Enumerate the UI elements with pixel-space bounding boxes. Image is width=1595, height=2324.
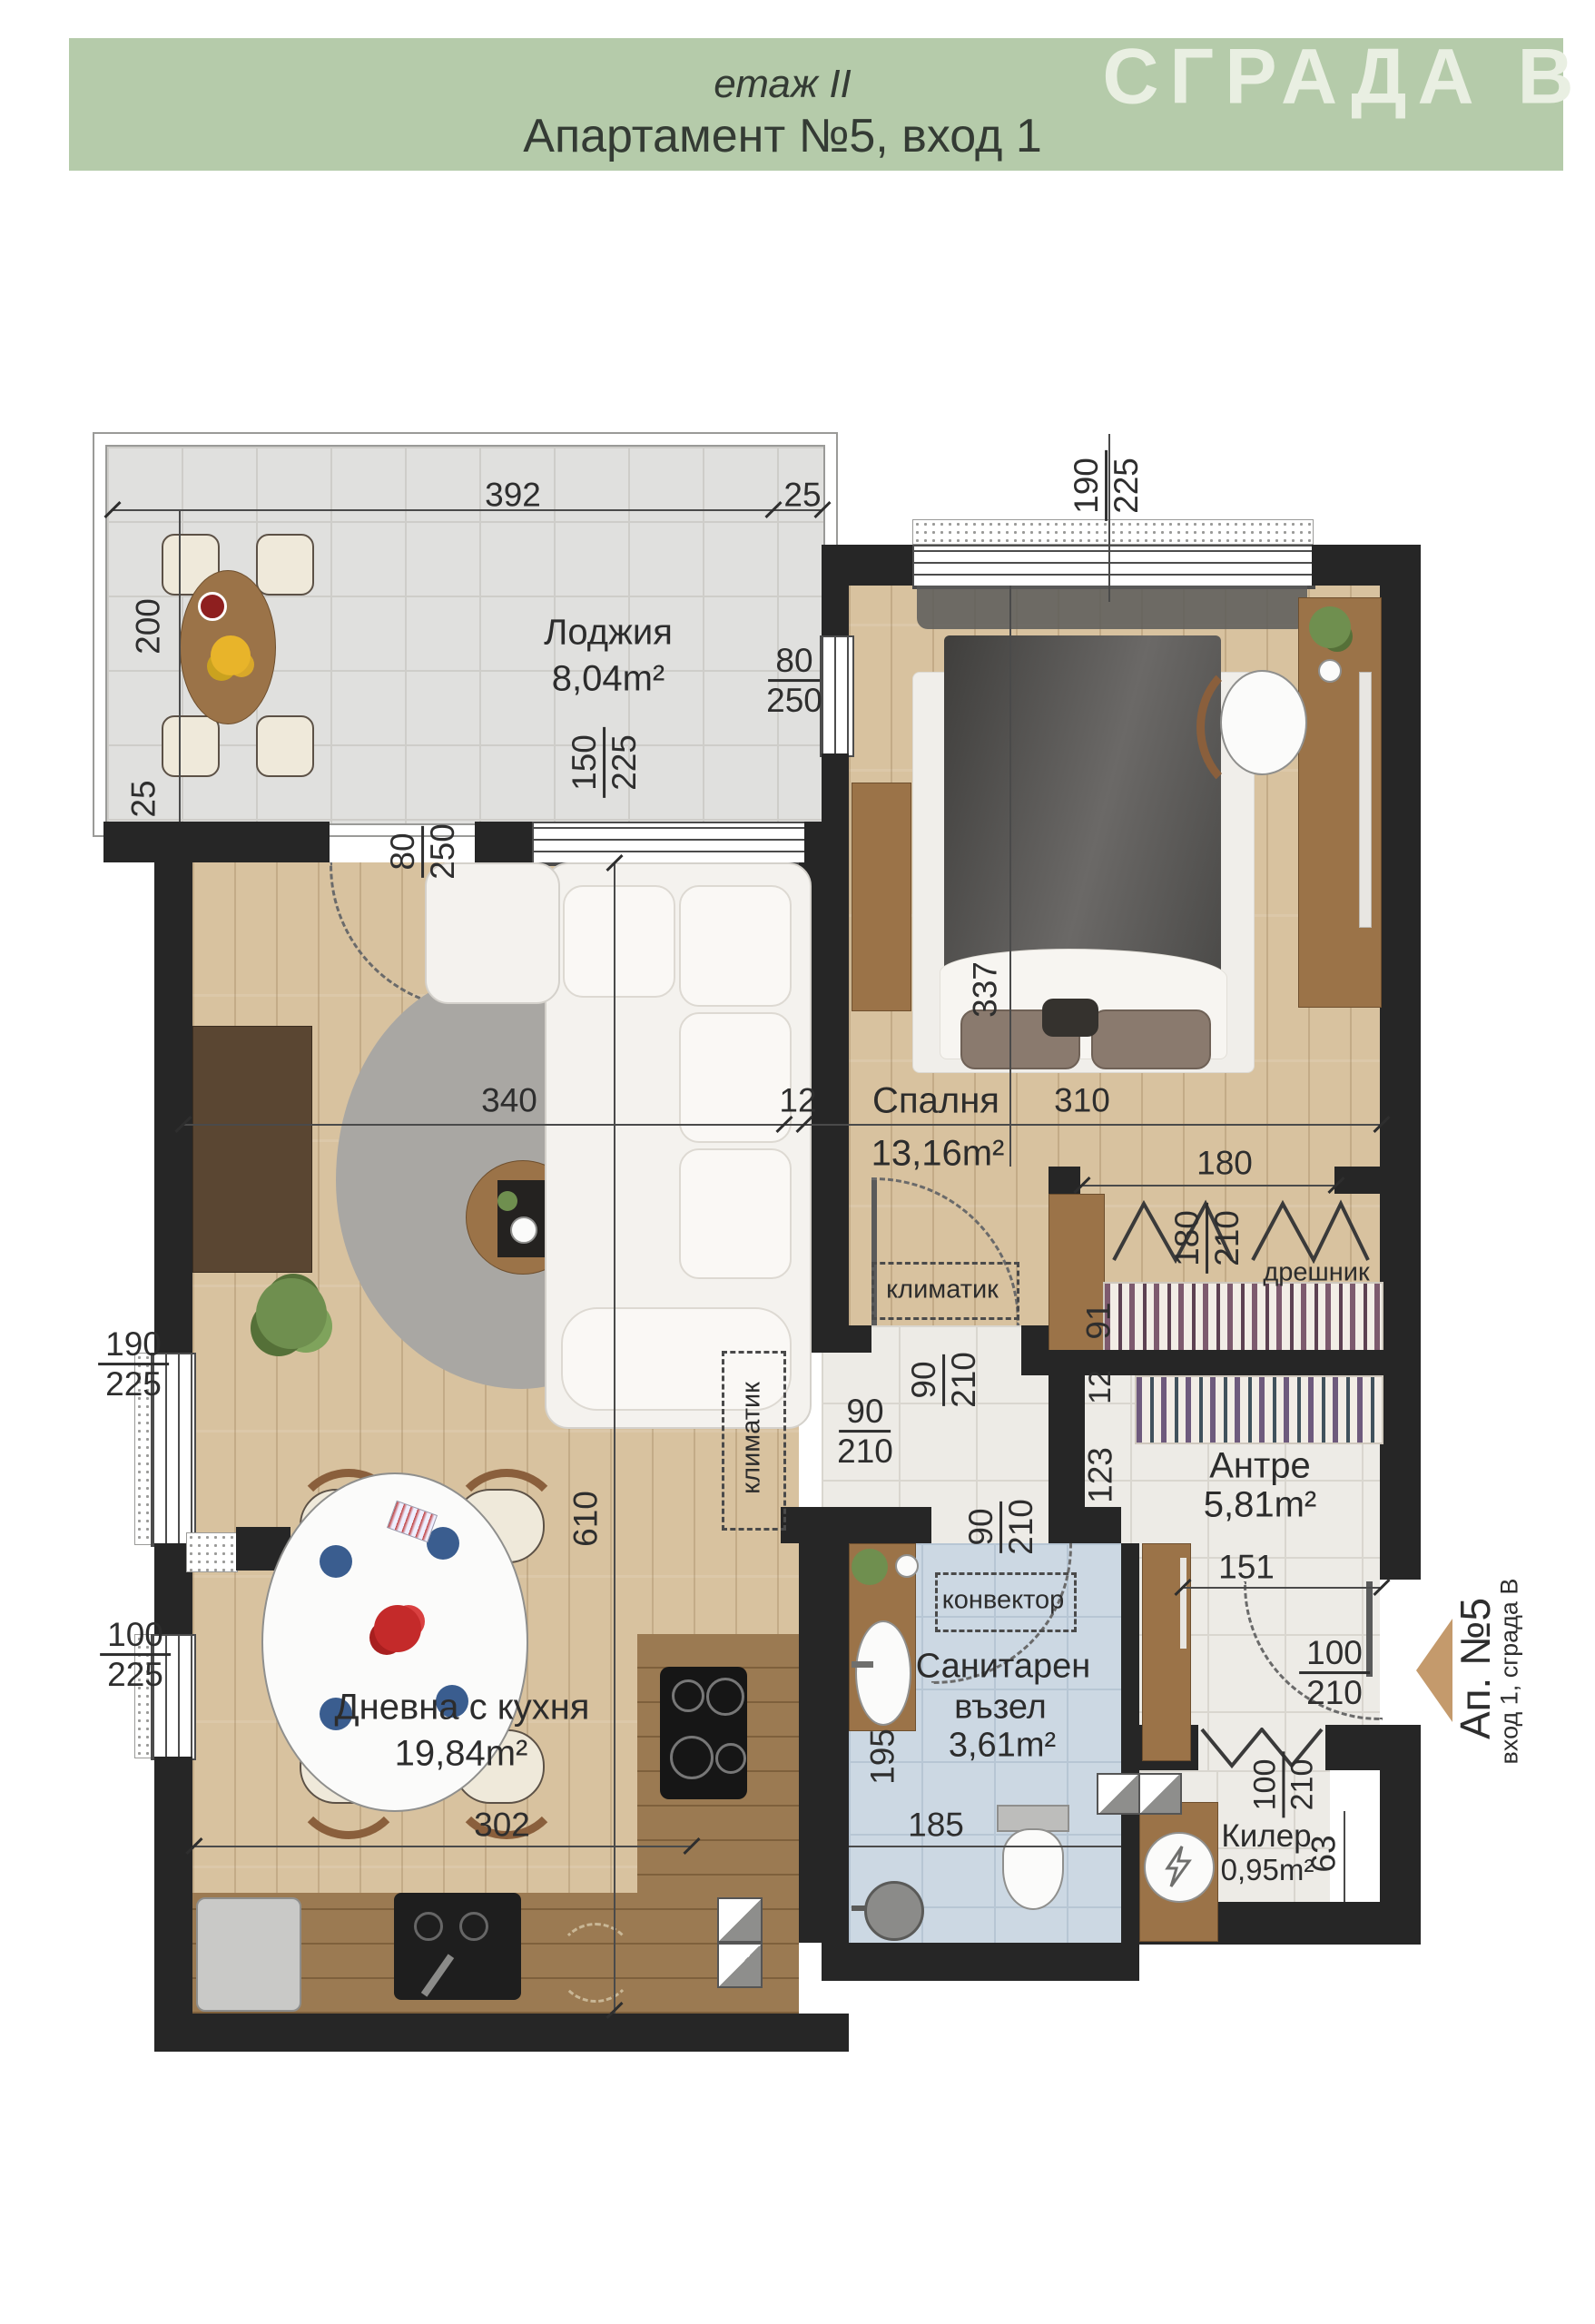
desk-cup: [1318, 659, 1342, 683]
bedroom-area: 13,16m²: [871, 1134, 1005, 1175]
loggia-name: Лоджия: [544, 613, 673, 654]
convector-label: конвектор: [942, 1586, 1065, 1616]
dining-flowers: [374, 1605, 421, 1652]
dim-storage-door: 100 210: [1247, 1752, 1319, 1818]
dim-value: 80: [768, 642, 820, 682]
loggia-chair: [256, 534, 314, 596]
header-floor-label: етаж II: [714, 62, 852, 107]
bath-faucet: [852, 1661, 873, 1668]
dimline: [111, 509, 822, 511]
hall-name: Антре: [1209, 1446, 1311, 1487]
entry-apartment-label: Ап. №5: [1454, 1598, 1496, 1739]
toilet-bowl: [1002, 1828, 1064, 1910]
loggia-area: 8,04m²: [552, 659, 665, 700]
dining-plate: [320, 1545, 352, 1578]
living-area: 19,84m²: [395, 1734, 528, 1775]
shaft-symbol: [717, 1897, 763, 1943]
loggia-chair: [256, 715, 314, 777]
dim-value: 190: [1068, 450, 1108, 521]
wall-right-lower: [1380, 1761, 1421, 1902]
loggia-chair: [162, 715, 220, 777]
dim-window-kitchen: 100 225: [100, 1616, 171, 1694]
living-ac-label: климатик: [737, 1382, 767, 1494]
wall-bedroom-door-a: [822, 1325, 871, 1353]
dim-loggia-width: 392: [485, 478, 541, 512]
dimline: [1080, 1185, 1334, 1187]
dim-value: 210: [837, 1433, 893, 1471]
bathroom-name-line1: Санитарен: [916, 1648, 1091, 1687]
bathroom-name-line2: възел: [954, 1689, 1047, 1728]
lightning-icon: [1160, 1845, 1196, 1888]
dim-living-pass: 90 210: [837, 1393, 893, 1471]
sofa-chaise: [425, 862, 560, 1004]
dim-storage-side: 63: [1307, 1835, 1341, 1872]
dimline: [1344, 1811, 1345, 1902]
dim-value: 90: [905, 1354, 945, 1405]
desk-shelf: [1359, 672, 1372, 928]
dim-value: 100: [100, 1616, 171, 1656]
loggia-cup: [198, 592, 227, 621]
tv-cabinet: [192, 1026, 312, 1273]
dim-value: 250: [425, 823, 462, 880]
wall-bedroom-left-b: [822, 753, 849, 862]
wall-bath-left: [799, 1543, 849, 1943]
header-apartment-title: Апартамент №5, вход 1: [523, 109, 1041, 163]
shaft-symbol: [1097, 1773, 1140, 1815]
entry-entrance-label: вход 1, сграда В: [1498, 1579, 1522, 1765]
dimline: [614, 862, 615, 2014]
bedroom-window: [912, 545, 1315, 589]
dim-bedroom-balcony: 80 250: [766, 642, 822, 720]
hall-closet-photo: [1135, 1375, 1383, 1444]
wall-living-bottom: [154, 2014, 849, 2052]
sofa-cushion: [679, 1148, 792, 1279]
dim-bedroom-door: 90 210: [905, 1352, 983, 1408]
dim-value: 250: [766, 683, 822, 720]
dim-loggia-corner: 25: [127, 780, 161, 817]
dim-value: 180: [1168, 1203, 1208, 1274]
wall-left-upper: [154, 822, 192, 1353]
sink-basin-dot: [459, 1912, 488, 1941]
bathroom-area: 3,61m²: [949, 1727, 1056, 1766]
dim-bedroom-depth: 337: [969, 961, 1002, 1018]
wall-left-lower: [154, 1757, 192, 2052]
dimline: [849, 1846, 1121, 1847]
dim-value: 150: [566, 727, 606, 798]
dim-wardrobe-width: 180: [1196, 1147, 1253, 1180]
dim-value: 210: [1306, 1675, 1363, 1712]
bedroom-balcony-window: [820, 635, 854, 757]
wardrobe-label: дрешник: [1263, 1258, 1369, 1288]
dim-living-width: 340: [481, 1084, 537, 1118]
wall-bedroom-top-left: [822, 545, 912, 586]
wall-loggia-living-c: [804, 822, 822, 862]
wall-loggia-living-b: [475, 822, 532, 862]
wall-loggia-living-a: [103, 822, 330, 862]
bath-soap-dot: [895, 1554, 919, 1578]
dimline: [1181, 1587, 1380, 1589]
shaft-symbol: [1138, 1773, 1182, 1815]
dim-wardrobe-door: 180 210: [1168, 1203, 1246, 1274]
insulation-strip-top: [912, 519, 1314, 545]
dimline: [179, 511, 181, 822]
sink-basin-dot: [414, 1912, 443, 1941]
dimline: [192, 1846, 690, 1847]
fridge: [196, 1897, 301, 2012]
dim-value: 225: [1108, 458, 1146, 514]
dim-living-depth: 610: [569, 1491, 603, 1547]
dim-value: 225: [606, 734, 644, 791]
dim-loggia-height: 200: [132, 598, 165, 655]
dim-value: 80: [384, 825, 424, 877]
dim-bath-door: 90 210: [962, 1499, 1040, 1555]
storage-area: 0,95m²: [1221, 1853, 1314, 1887]
storage-name: Килер: [1221, 1818, 1311, 1855]
shower-head: [864, 1881, 924, 1941]
cooktop-burner: [706, 1678, 744, 1716]
dim-value: 225: [107, 1657, 163, 1694]
dim-bedroom-width: 310: [1054, 1084, 1110, 1118]
dim-loggia-window: 150 225: [566, 727, 644, 798]
dim-entry-door: 100 210: [1299, 1634, 1370, 1712]
entry-arrow-icon: [1416, 1619, 1452, 1722]
bath-plant: [852, 1549, 888, 1585]
bedroom-name: Спалня: [872, 1081, 999, 1122]
dim-bath-depth: 195: [866, 1728, 900, 1785]
wall-bath-top-a: [799, 1507, 931, 1543]
dim-value: 100: [1299, 1634, 1370, 1674]
dimline: [1009, 586, 1011, 1167]
wall-bath-top-b: [1069, 1507, 1121, 1543]
dim-kitchen-width: 302: [474, 1808, 530, 1842]
bedroom-dresser: [852, 783, 911, 1011]
dim-value: 210: [1003, 1499, 1040, 1555]
dim-value: 90: [839, 1393, 891, 1433]
insulation-stub: [186, 1532, 238, 1572]
hall-area: 5,81m²: [1204, 1485, 1317, 1526]
dim-corridor-len: 123: [1084, 1447, 1117, 1503]
bed-accent-pillow: [1042, 999, 1098, 1037]
cooktop-burner: [670, 1736, 714, 1779]
dim-living-door: 80 250: [384, 823, 462, 880]
header-building-label: СГРАДА В: [1102, 33, 1584, 123]
cooktop-burner: [715, 1743, 746, 1774]
bedroom-curtain: [917, 586, 1307, 629]
dim-value: 210: [946, 1352, 983, 1408]
dim-value: 210: [1285, 1759, 1320, 1811]
floorplan-page: етаж II Апартамент №5, вход 1 СГРАДА В: [0, 0, 1595, 2324]
bath-sink: [855, 1620, 911, 1726]
wardrobe-hangers-photo: [1103, 1282, 1383, 1354]
dim-window-living: 190 225: [98, 1325, 169, 1403]
loggia-window-150: [532, 822, 808, 866]
sofa-cushion: [679, 885, 792, 1007]
wall-bedroom-left-a: [822, 586, 849, 635]
shaft-symbol: [717, 1943, 763, 1988]
bedroom-ac-label: климатик: [886, 1275, 999, 1305]
dim-value: 190: [98, 1325, 169, 1365]
wall-storage-top-b: [1325, 1725, 1421, 1770]
dim-corridor-gap: 12: [1085, 1370, 1116, 1404]
wall-hall-top: [1021, 1350, 1421, 1375]
dim-hall-width: 151: [1218, 1551, 1275, 1584]
dishwasher-symbol: [556, 1923, 635, 2003]
dim-bath-width: 185: [908, 1808, 964, 1842]
coffee-vase: [510, 1216, 537, 1244]
wall-bath-bottom: [822, 1943, 1139, 1981]
dim-value: 225: [105, 1366, 162, 1403]
loggia-flowers: [211, 635, 251, 675]
bed-pillow: [1091, 1009, 1211, 1069]
kitchen-sink: [394, 1893, 521, 2000]
wall-right-upper: [1380, 545, 1421, 1580]
hall-cabinet-handle: [1180, 1558, 1186, 1649]
sofa-cushion: [563, 885, 675, 998]
cooktop-burner: [672, 1679, 704, 1712]
dim-wall-gap: 12: [779, 1084, 816, 1118]
dim-bedroom-window: 190 225: [1068, 450, 1146, 521]
dim-value: 100: [1247, 1752, 1285, 1818]
living-plant: [256, 1278, 327, 1349]
dim-wardrobe-depth: 91: [1082, 1302, 1116, 1339]
dim-value: 210: [1209, 1210, 1246, 1266]
coffee-plant-sprig: [497, 1191, 517, 1211]
dim-value: 90: [962, 1501, 1002, 1552]
desk-plant: [1309, 606, 1351, 648]
dim-loggia-side: 25: [783, 478, 821, 512]
desk-chair-seat: [1220, 670, 1307, 775]
living-name: Дневна с кухня: [335, 1688, 590, 1728]
